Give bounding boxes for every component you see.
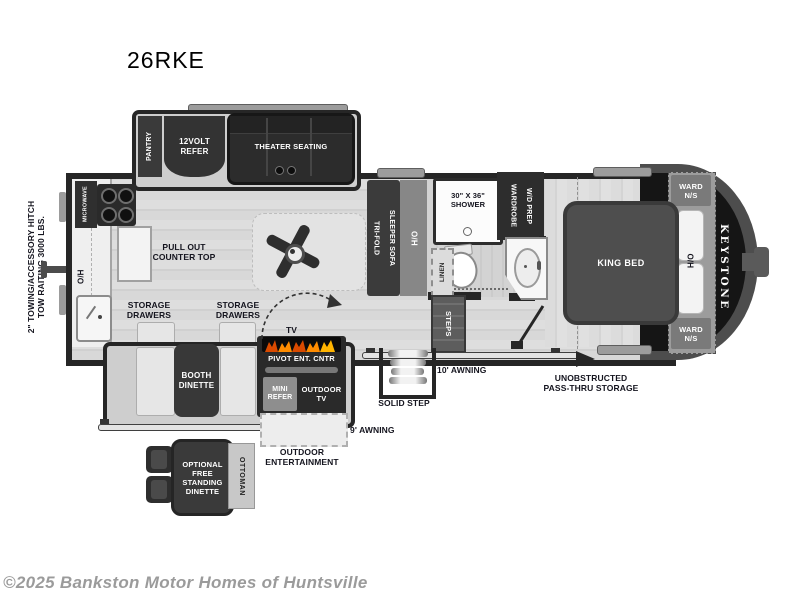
rear-window-marker-top	[59, 192, 66, 222]
shower: 30" X 36" SHOWER	[433, 178, 503, 245]
window-marker-bed-bottom	[597, 345, 652, 355]
pull-out-counter-label: PULL OUT COUNTER TOP	[146, 242, 222, 262]
solid-step-label: SOLID STEP	[369, 398, 439, 408]
outdoor-entertainment-box	[260, 413, 348, 447]
faucet-icon	[86, 306, 96, 319]
rear-hitch-cap-icon	[41, 261, 47, 278]
vanity-faucet-icon	[537, 261, 541, 270]
storage-drawers-label-left: STORAGE DRAWERS	[117, 300, 181, 320]
microwave: MICROWAVE	[75, 181, 97, 228]
pivot-ent-cntr-label: PIVOT ENT. CNTR	[257, 354, 346, 363]
entertainment-center: PIVOT ENT. CNTR MINI REFER OUTDOOR TV	[257, 336, 346, 417]
range-stove-icon	[97, 184, 136, 226]
cupholder-icon	[275, 166, 284, 175]
cupholder-icon	[287, 166, 296, 175]
awning-arrow-icon	[576, 351, 595, 367]
tri-fold-sleeper-sofa: TRI-FOLD SLEEPER SOFA	[367, 180, 400, 296]
ent-center-handle	[265, 367, 338, 373]
theater-seating-sofa: THEATER SEATING	[227, 113, 355, 185]
wardrobe-ns-top: WARD N/S	[671, 175, 711, 206]
bedroom-steps: STEPS	[431, 295, 466, 353]
tv-label: TV	[286, 325, 297, 335]
shower-drain-icon	[463, 227, 472, 236]
window-marker-sofa	[377, 168, 425, 178]
awning-9-end-left	[100, 419, 109, 424]
dealer-watermark: ©2025 Bankston Motor Homes of Huntsville	[3, 573, 368, 593]
awning-10-end-left	[366, 348, 375, 353]
dinette-bench-left	[136, 347, 175, 416]
dinette-bench-right	[220, 347, 256, 416]
linen-cabinet: LINEN	[431, 248, 454, 297]
awning-9-label: 9' AWNING	[350, 425, 395, 435]
optional-dinette-table: OPTIONAL FREE STANDING DINETTE	[171, 439, 234, 516]
rear-hitch-icon	[45, 266, 67, 273]
pass-thru-storage-label: UNOBSTRUCTED PASS-THRU STORAGE	[534, 373, 648, 393]
hitch-pin-icon	[754, 247, 769, 277]
front-overhead-label: H/O	[684, 246, 698, 276]
outdoor-entertainment-label: OUTDOOR ENTERTAINMENT	[249, 447, 355, 467]
sofa-overhead-label: O/H	[400, 180, 427, 296]
floorplan-title: 26RKE	[127, 47, 205, 74]
fireplace-flames-icon	[262, 337, 341, 352]
awning-10-end-right	[551, 348, 560, 353]
twelve-volt-refrigerator: 12VOLT REFER	[164, 116, 225, 177]
window-marker-bed-top	[593, 167, 652, 177]
awning-10-label: 10' AWNING	[437, 365, 486, 375]
ottoman: OTTOMAN	[228, 443, 255, 509]
dinette-chair-top	[146, 446, 173, 473]
solid-step-icon	[379, 348, 436, 399]
storage-drawers-label-right: STORAGE DRAWERS	[206, 300, 270, 320]
shower-label: 30" X 36" SHOWER	[436, 192, 500, 210]
pantry-cabinet: PANTRY	[138, 116, 162, 177]
dinette-chair-bottom	[146, 476, 173, 503]
wardrobe-ns-bottom: WARD N/S	[671, 318, 711, 349]
theater-seating-label: THEATER SEATING	[230, 142, 352, 151]
kitchen-overhead-label: O/H	[74, 263, 88, 291]
faucet-base-icon	[98, 315, 102, 319]
kitchen-sink-icon	[76, 295, 112, 342]
king-bed: KING BED	[563, 201, 679, 325]
mini-refrigerator: MINI REFER	[263, 377, 297, 411]
brand-keystone: KEYSTONE	[714, 212, 734, 322]
outdoor-tv-label: OUTDOOR TV	[299, 377, 344, 411]
rear-window-marker-bottom	[59, 285, 66, 315]
ceiling-fan-icon	[264, 223, 322, 281]
floorplan-scene: 26RKE 2" TOWING/ACCESSORY HITCH TOW RAIT…	[0, 0, 800, 600]
wardrobe-wd-prep: WARDROBE W/D PREP	[497, 172, 544, 240]
booth-dinette-table: BOOTH DINETTE	[174, 344, 219, 417]
theater-seat-back	[230, 116, 352, 134]
